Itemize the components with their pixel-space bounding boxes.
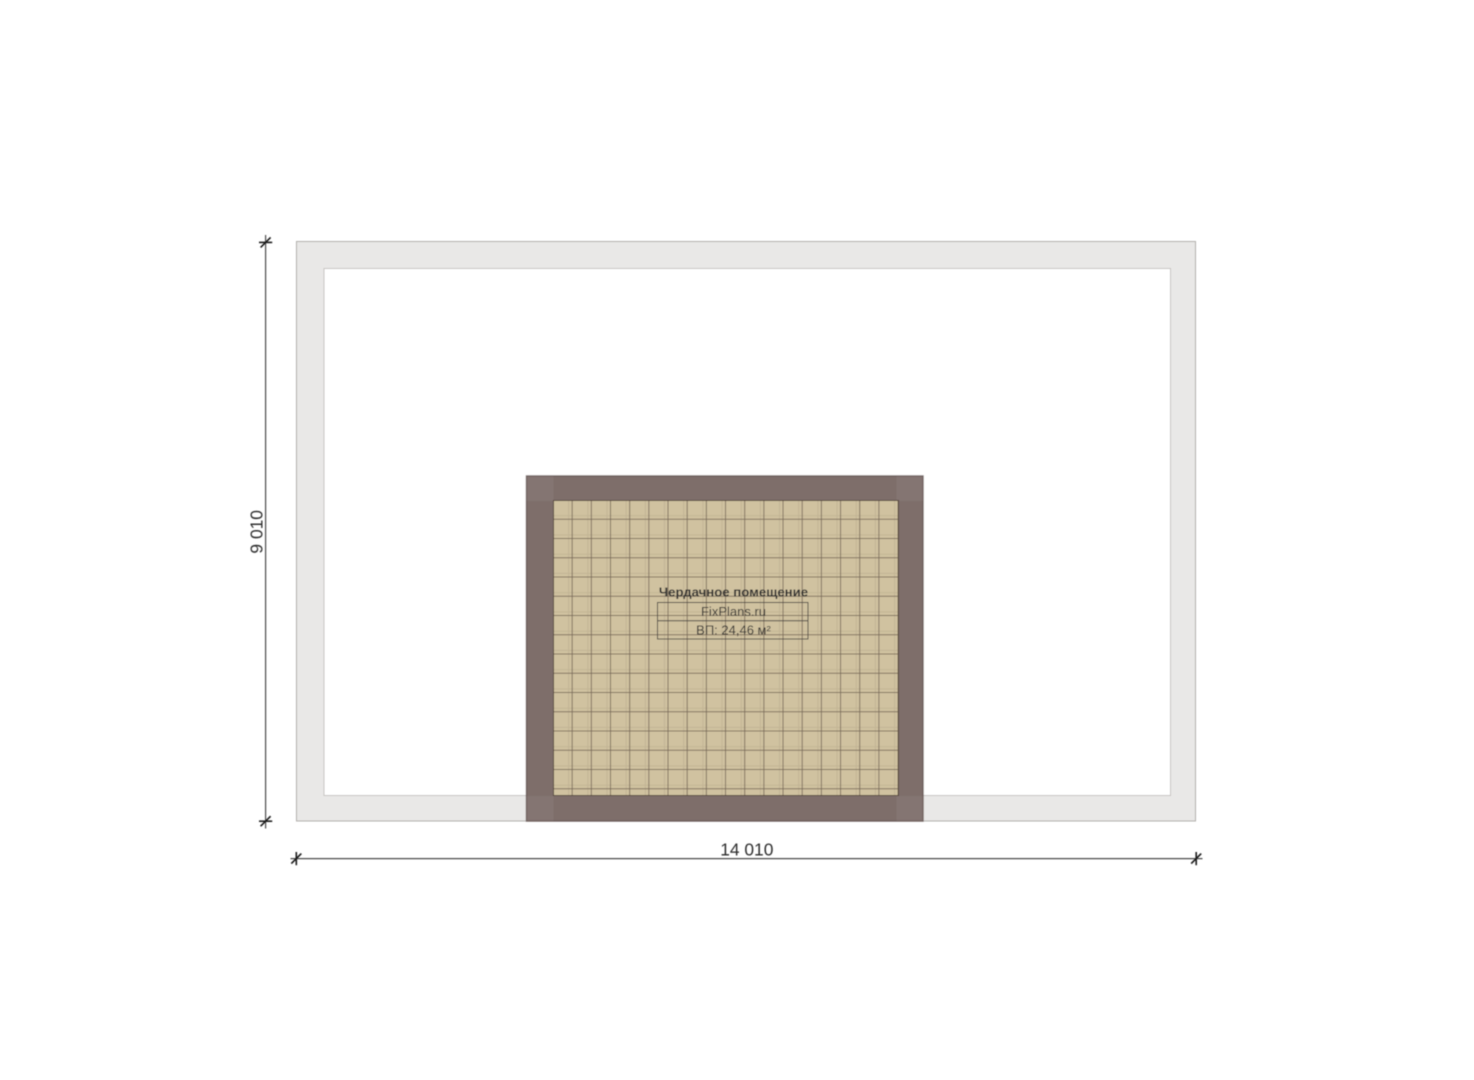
- svg-text:ВП: 24,46 м²: ВП: 24,46 м²: [696, 623, 771, 638]
- svg-text:14 010: 14 010: [720, 839, 773, 859]
- svg-text:Чердачное помещение: Чердачное помещение: [659, 585, 808, 600]
- svg-text:FixPlans.ru: FixPlans.ru: [701, 604, 766, 619]
- svg-text:9 010: 9 010: [246, 510, 266, 554]
